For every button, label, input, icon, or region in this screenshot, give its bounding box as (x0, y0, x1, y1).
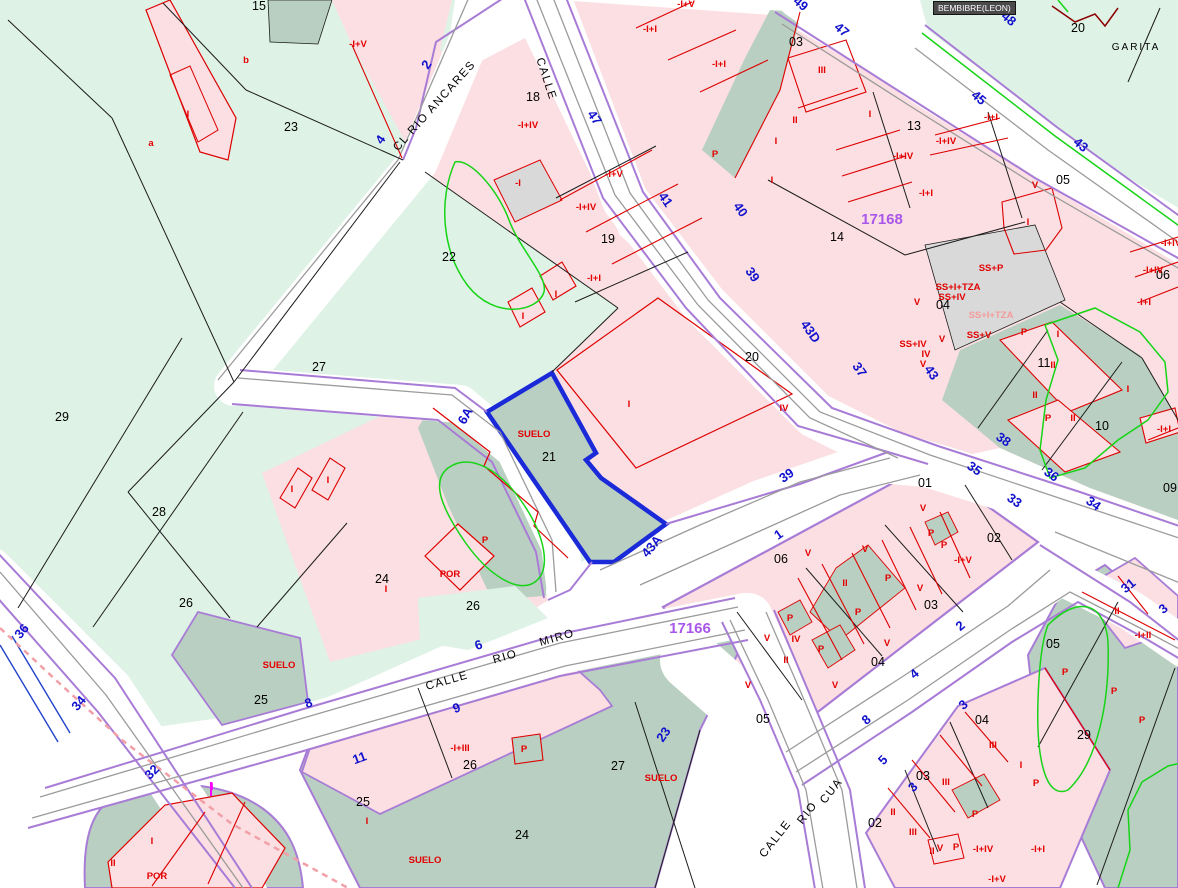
building-code-label: -I+IV (936, 136, 957, 147)
building-code-label: I (291, 484, 294, 495)
building-code-label: I (771, 175, 774, 186)
parcel-number-label: 29 (1077, 728, 1091, 742)
building-code-label: -I+V (349, 39, 367, 50)
parcel-number-label: 18 (526, 90, 540, 104)
building-code-label: -I+IV (518, 120, 539, 131)
parcel-number-label: 03 (924, 598, 938, 612)
building-code-label: II (929, 846, 934, 857)
building-code-label: II (890, 807, 895, 818)
parcel-number-label: 05 (1046, 637, 1060, 651)
parcel-number-label: 14 (830, 230, 844, 244)
building-code-label: b (243, 55, 249, 66)
parcel-number-label: 04 (975, 713, 989, 727)
building-code-label: I (1127, 384, 1130, 395)
building-code-label: V (937, 843, 944, 854)
building-code-label: -I+V (954, 555, 972, 566)
parcel-number-label: 02 (868, 816, 882, 830)
building-code-label: I (1027, 217, 1030, 228)
parcel-number-label: 27 (312, 360, 326, 374)
building-code-label: a (148, 138, 154, 149)
building-code-label: -I+II (1135, 630, 1152, 641)
building-code-label: P (712, 149, 719, 160)
building-code-label: -I+I (919, 188, 933, 199)
magenta-marker: I (210, 781, 213, 793)
building-code-label: -I+IV (973, 844, 994, 855)
building-code-label: I (555, 289, 558, 300)
building-code-label: P (521, 744, 528, 755)
building-code-label: V (764, 633, 771, 644)
parcel-number-label: 29 (55, 410, 69, 424)
building-code-label: II (842, 578, 847, 589)
parcel-number-label: 09 (1163, 481, 1177, 495)
building-code-label: V (884, 638, 891, 649)
parcel-number-label: 03 (916, 769, 930, 783)
building-code-label: I (366, 816, 369, 827)
building-code-label: V (1032, 180, 1039, 191)
building-code-label: P (1111, 686, 1118, 697)
building-code-label: P (818, 644, 825, 655)
building-code-label: V (917, 583, 924, 594)
building-code-label: IV (780, 403, 790, 414)
street-number-label: 1 (771, 526, 786, 542)
building-code-label: I (628, 399, 631, 410)
building-code-label: II (783, 655, 788, 666)
parcel-number-label: 05 (1056, 173, 1070, 187)
building-code-label: P (941, 540, 948, 551)
building-code-label: II (1050, 360, 1055, 371)
building-code-label: -I+I (712, 59, 726, 70)
building-code-label: POR (147, 871, 168, 882)
building-code-label: SUELO (645, 773, 678, 784)
parcel-number-label: 26 (463, 758, 477, 772)
street-name-label: CALLE (757, 818, 794, 860)
building-code-label: -I (515, 178, 521, 189)
building-code-label: P (482, 535, 489, 546)
parcel-number-label: 24 (515, 828, 529, 842)
building-code-label: SS+P (979, 263, 1004, 274)
parcel-number-label: 23 (284, 120, 298, 134)
building-code-label: II (1070, 413, 1075, 424)
parcel-number-label: 20 (1071, 21, 1085, 35)
building-code-label: SUELO (263, 660, 296, 671)
building-code-label: I (187, 109, 190, 120)
building-code-label: -I+IV (1161, 238, 1178, 249)
building-code-label: -I+V (677, 0, 695, 10)
building-code-label: V (745, 680, 752, 691)
parcel-number-label: 04 (871, 655, 885, 669)
parcel-number-label: 05 (756, 712, 770, 726)
parcel-number-label: GARITA (1112, 42, 1160, 53)
building-code-label: -I+I (1157, 424, 1171, 435)
parcel-number-label: 03 (789, 35, 803, 49)
building-code-label: POR (440, 569, 461, 580)
building-code-label: SUELO (518, 429, 551, 440)
building-code-label: P (1021, 327, 1028, 338)
building-code-label: -I+V (605, 169, 623, 180)
building-code-label: -I+I (984, 112, 998, 123)
building-code-label: III (942, 777, 950, 788)
building-code-label: -I+I (1137, 297, 1151, 308)
building-code-label: P (855, 607, 862, 618)
building-code-label: IV (792, 634, 802, 645)
building-code-label: I (1020, 760, 1023, 771)
building-code-label: III (909, 827, 917, 838)
building-code-label: SS+I+TZA (969, 310, 1014, 321)
building-code-label: -I+IV (1143, 265, 1164, 276)
block-id-label: 17168 (861, 211, 903, 228)
building-code-label: I (869, 109, 872, 120)
building-code-label: I (385, 584, 388, 595)
building-code-label: V (920, 359, 927, 370)
map-viewport[interactable]: 1523222729282626181920212425252627240313… (0, 0, 1178, 888)
building-code-label: P (885, 573, 892, 584)
building-code-label: V (805, 548, 812, 559)
building-code-label: -I+IV (576, 202, 597, 213)
building-code-label: II (792, 115, 797, 126)
building-26p (512, 734, 543, 764)
building-code-label: V (920, 503, 927, 514)
building-code-label: SS+V (967, 330, 992, 341)
building-code-label: P (928, 528, 935, 539)
building-code-label: SUELO (409, 855, 442, 866)
cadastral-map[interactable]: 1523222729282626181920212425252627240313… (0, 0, 1178, 888)
parcel-number-label: 22 (442, 250, 456, 264)
parcel-number-label: 15 (252, 0, 266, 13)
parcel-number-label: 28 (152, 505, 166, 519)
parcel-number-label: 19 (601, 232, 615, 246)
parcel-number-label: 01 (918, 476, 932, 490)
parcel-number-label: 10 (1095, 419, 1109, 433)
building-code-label: P (1033, 778, 1040, 789)
building-code-label: -I+IV (893, 151, 914, 162)
building-code-label: I (1057, 329, 1060, 340)
building-code-label: -I+V (988, 874, 1006, 885)
parcel-number-label: 21 (542, 450, 556, 464)
building-code-label: I (775, 136, 778, 147)
building-code-label: III (989, 740, 997, 751)
building-code-label: V (939, 334, 946, 345)
building-code-label: -I+I (587, 273, 601, 284)
building-code-label: II (110, 858, 115, 869)
municipality-tooltip: BEMBIBRE(LEON) (933, 1, 1016, 15)
building-code-label: P (787, 613, 794, 624)
street-number-label: 5 (875, 752, 891, 768)
building-code-label: P (972, 809, 979, 820)
building-code-label: II (1114, 606, 1119, 617)
building-code-label: I (151, 836, 154, 847)
parcel-number-label: 25 (356, 795, 370, 809)
building-code-label: I (327, 475, 330, 486)
building-code-label: I (522, 311, 525, 322)
parcel-number-label: 06 (774, 552, 788, 566)
parcel-number-label: 26 (466, 599, 480, 613)
building-code-label: SS+IV (938, 292, 966, 303)
building-code-label: II (1032, 390, 1037, 401)
building-code-label: V (832, 680, 839, 691)
parcel-number-label: 02 (987, 531, 1001, 545)
building-code-label: P (1139, 715, 1146, 726)
parcel-number-label: 27 (611, 759, 625, 773)
building-code-label: V (862, 544, 869, 555)
parcel-number-label: 13 (907, 119, 921, 133)
building-code-label: -I+I (1031, 844, 1045, 855)
parcel-number-label: 26 (179, 596, 193, 610)
parcel-number-label: 11 (1038, 356, 1051, 370)
building-code-label: P (1045, 413, 1052, 424)
building-code-label: III (818, 65, 826, 76)
building-code-label: -I+I (643, 24, 657, 35)
parcel-number-label: 20 (745, 350, 759, 364)
building-code-label: -I+III (450, 743, 469, 754)
building-code-label: P (953, 842, 960, 853)
building-code-label: V (914, 297, 921, 308)
block-id-label: 17166 (669, 620, 711, 637)
parcel-number-label: 25 (254, 693, 268, 707)
building-code-label: P (1062, 667, 1069, 678)
